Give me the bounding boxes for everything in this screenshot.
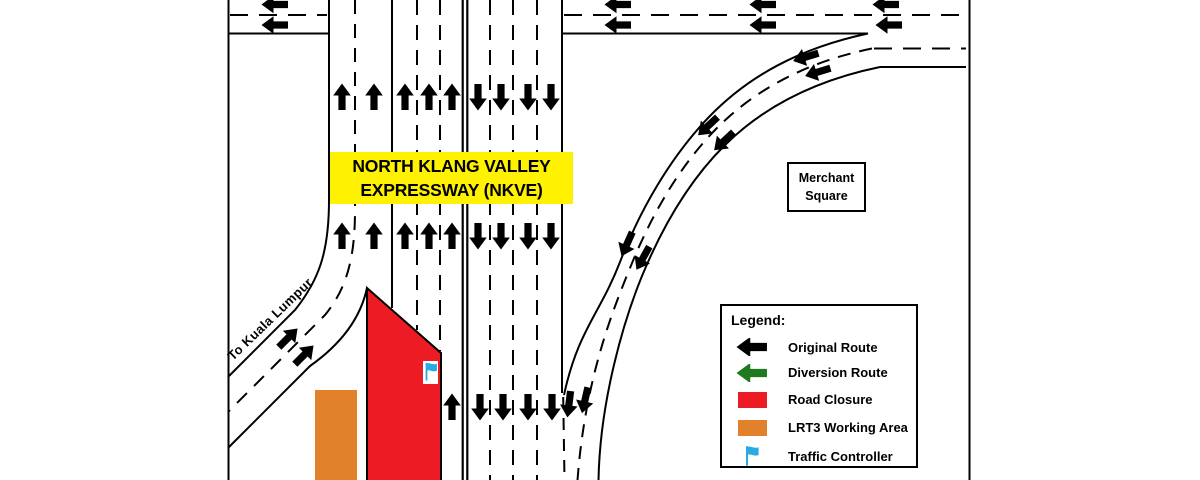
green-left-arrow-icon	[735, 364, 769, 382]
traffic-controller-flag	[423, 361, 438, 384]
legend-box: Legend: Original Route Diversion Route R…	[720, 304, 918, 468]
merchant-square-label: Merchant Square	[787, 162, 866, 212]
expressway-name-line2: EXPRESSWAY (NKVE)	[360, 178, 542, 202]
merchant-square-line2: Square	[805, 187, 847, 205]
road-closure-swatch	[735, 392, 769, 408]
legend-label: Traffic Controller	[788, 449, 893, 464]
expressway-name-label: NORTH KLANG VALLEY EXPRESSWAY (NKVE)	[330, 152, 573, 204]
legend-item-lrt3-working-area: LRT3 Working Area	[722, 415, 916, 441]
legend-label: Original Route	[788, 340, 878, 355]
lrt3-working-area	[315, 390, 357, 480]
traffic-controller-flag-icon	[735, 445, 769, 468]
legend-label: Road Closure	[788, 392, 873, 407]
legend-item-diversion-route: Diversion Route	[722, 360, 916, 386]
working-area-swatch	[735, 420, 769, 436]
traffic-diversion-diagram: NORTH KLANG VALLEY EXPRESSWAY (NKVE) To …	[0, 0, 1200, 480]
merchant-square-line1: Merchant	[799, 169, 855, 187]
expressway-name-line1: NORTH KLANG VALLEY	[352, 154, 550, 178]
legend-item-original-route: Original Route	[722, 334, 916, 360]
legend-item-traffic-controller: Traffic Controller	[722, 443, 916, 469]
road-network-drawing	[0, 0, 1200, 480]
black-left-arrow-icon	[735, 338, 769, 356]
legend-label: Diversion Route	[788, 365, 888, 380]
legend-item-road-closure: Road Closure	[722, 387, 916, 413]
top-road	[228, 15, 966, 67]
legend-label: LRT3 Working Area	[788, 420, 908, 435]
legend-title: Legend:	[731, 312, 785, 328]
